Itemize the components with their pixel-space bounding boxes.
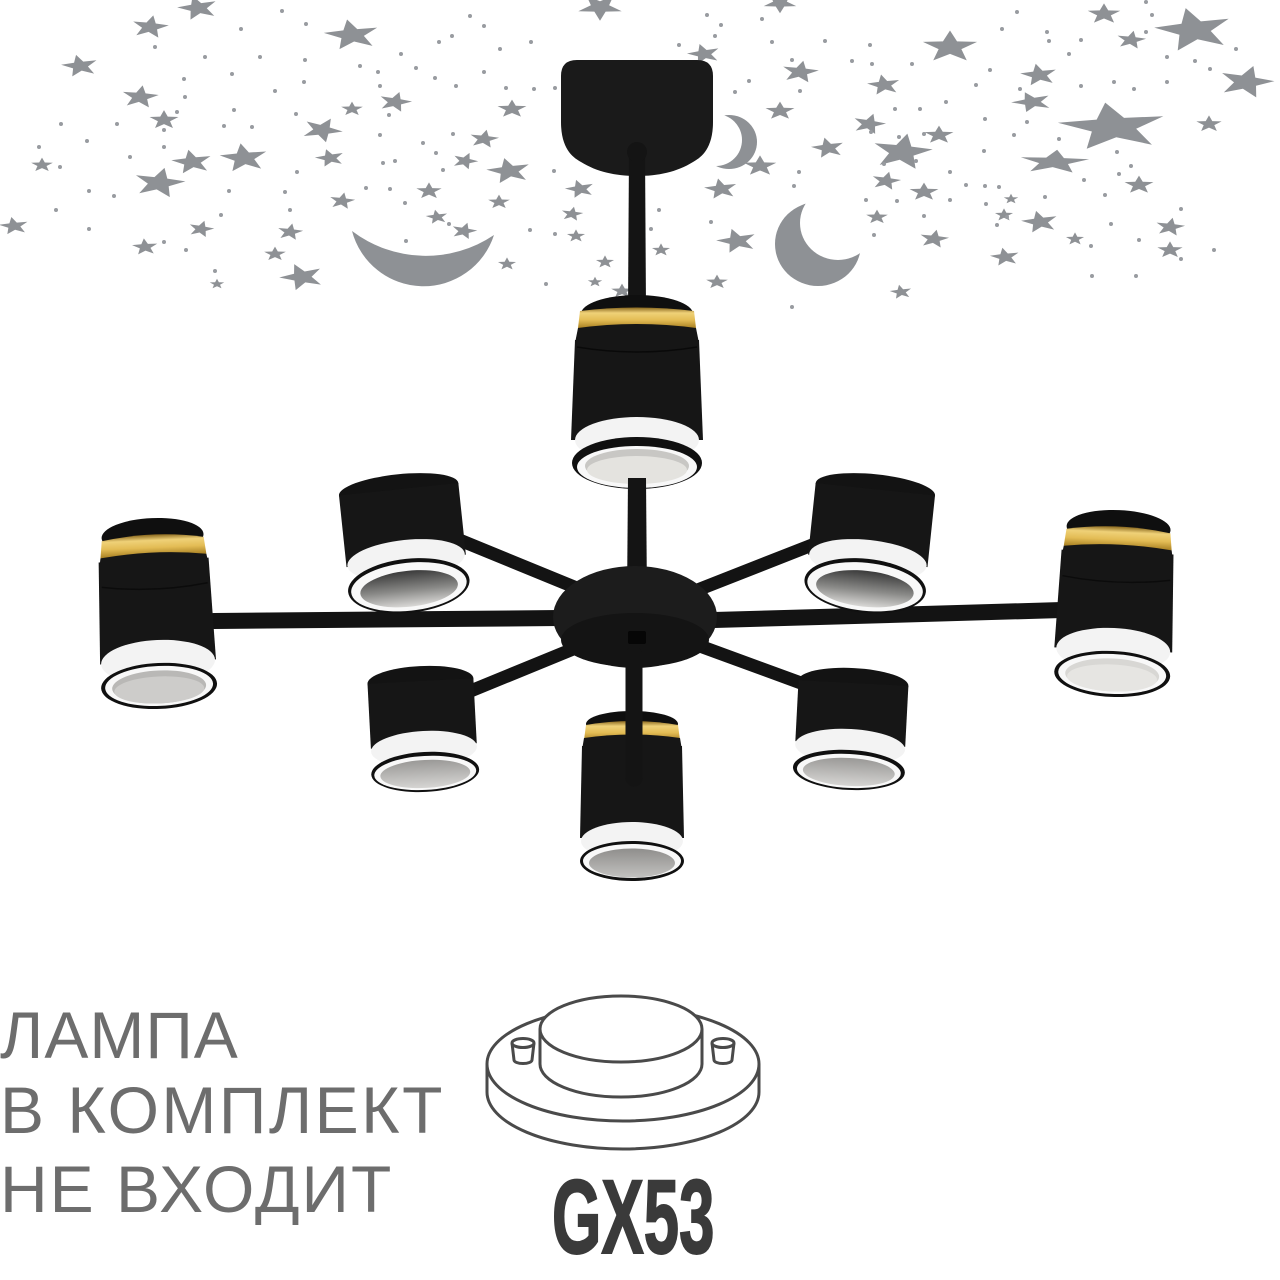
svg-text:ЛАМПА: ЛАМПА: [0, 998, 239, 1072]
svg-text:НЕ ВХОДИТ: НЕ ВХОДИТ: [0, 1152, 393, 1226]
svg-text:В КОМПЛЕКТ: В КОМПЛЕКТ: [0, 1073, 445, 1147]
svg-text:GX53: GX53: [552, 1159, 714, 1276]
